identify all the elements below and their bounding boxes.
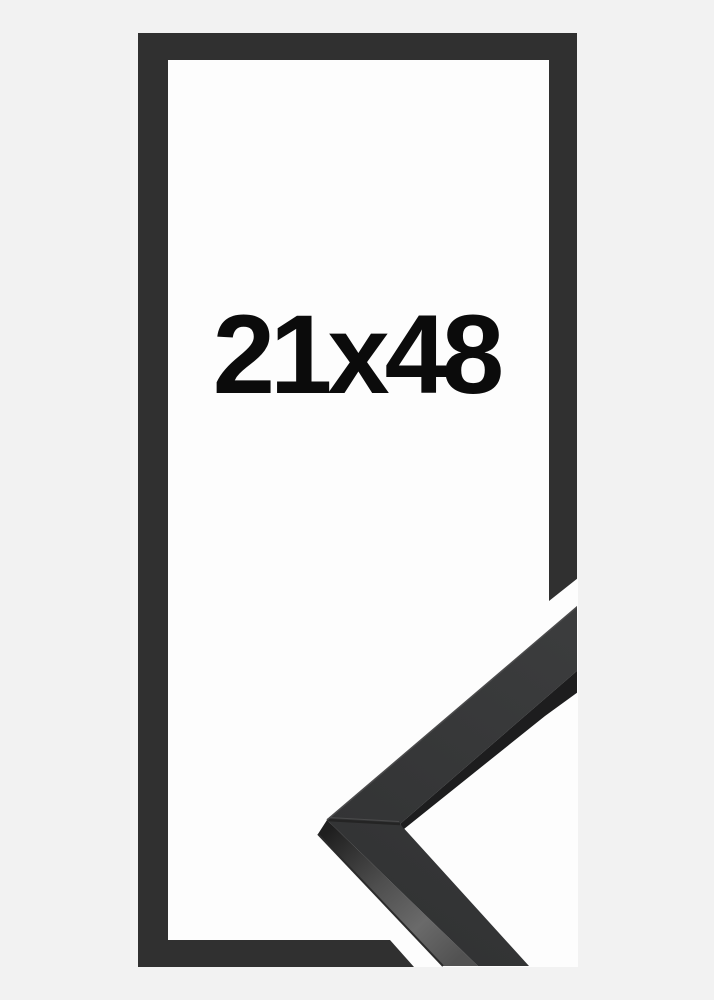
product-image: 21x48 (0, 0, 714, 1000)
frame-product-graphic: 21x48 (0, 0, 714, 1000)
size-label: 21x48 (213, 292, 501, 417)
